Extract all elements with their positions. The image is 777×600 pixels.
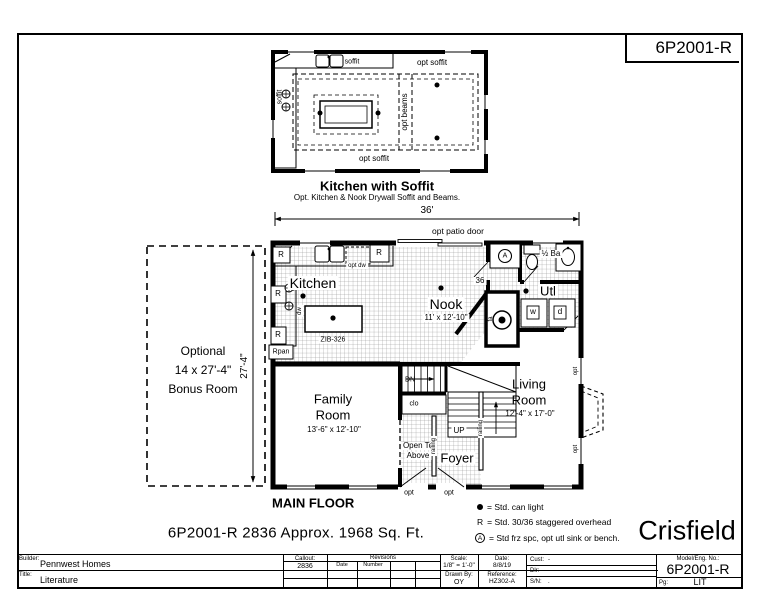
title-label: Title: [19, 572, 32, 578]
opt-window-label-2: opt [573, 445, 579, 453]
island-model-label: ZIB-326 [319, 337, 348, 344]
family-room-dimension: 13'-6" x 12'-10" [307, 426, 361, 434]
inset-subtitle: Opt. Kitchen & Nook Drywall Soffit and B… [294, 194, 460, 202]
utility-label: Utl [538, 285, 558, 298]
closet-label: clo [410, 401, 419, 408]
dlr-label: Dlr: [530, 568, 539, 574]
furnace-label: fa [488, 316, 494, 321]
opt-dw-label: opt dw [346, 263, 368, 269]
opt-window-label-1: opt [573, 367, 579, 375]
drawing-sheet: 6P2001-R [0, 0, 777, 600]
inset-soffit-top-label: soffit [345, 59, 360, 66]
dw-label: dw [297, 305, 303, 317]
builder-value: Pennwest Homes [40, 560, 111, 569]
opt-door-label-1: opt [404, 490, 414, 497]
opt-door-label-2: opt [444, 490, 454, 497]
railing-label-right: railing [478, 418, 484, 438]
plan-height-dimension: 27'-4" [240, 351, 250, 380]
dlr-value: - [548, 568, 550, 574]
open-to-above-label-2: Above [405, 452, 432, 460]
legend-can-light-text: = Std. can light [487, 502, 543, 512]
inset-opt-soffit-bottom-label: opt soffit [359, 155, 389, 163]
half-bath-label: ½ Ba [540, 250, 563, 258]
r-marker-2: R [275, 290, 281, 298]
r-marker-4: R [376, 249, 382, 257]
nook-label: Nook [428, 297, 465, 311]
dryer-label: d [558, 308, 562, 316]
living-room-label-2: Room [512, 394, 547, 407]
pg-value: LIT [693, 578, 706, 587]
bonus-room-label-3: Bonus Room [168, 383, 237, 395]
reference-value: HZ302-A [489, 579, 515, 586]
date-value: 8/8/19 [493, 563, 511, 570]
legend-overhead: R = Std. 30/36 staggered overhead [477, 517, 611, 527]
sn-label: S/N: [530, 579, 542, 585]
cust-label: Cust: [530, 557, 544, 563]
legend-frz-space-text: = Std frz spc, opt utl sink or bench. [489, 533, 620, 543]
inset-soffit-left-label: soffit [277, 90, 284, 105]
model-value: 6P2001-R [666, 562, 729, 576]
family-room-label-2: Room [316, 409, 351, 422]
sn-value: . [548, 579, 550, 585]
drawn-by-value: OY [454, 579, 464, 586]
plan-caption: 6P2001-R 2836 Approx. 1968 Sq. Ft. [168, 525, 424, 542]
circle-a-icon: A [475, 533, 485, 543]
living-room-label-1: Living [512, 378, 546, 391]
pg-label: Pg: [659, 580, 668, 586]
callout-value: 2836 [297, 563, 313, 570]
main-floor-label: MAIN FLOOR [272, 497, 354, 510]
kitchen-label: Kitchen [288, 276, 339, 290]
legend-overhead-text: = Std. 30/36 staggered overhead [487, 517, 611, 527]
family-room-label-1: Family [314, 393, 352, 406]
model-name: Crisfield [638, 516, 736, 547]
callout-label: Callout: [295, 556, 315, 562]
inset-title: Kitchen with Soffit [320, 180, 434, 193]
title-value: Literature [40, 576, 78, 585]
inset-opt-soffit-top-label: opt soffit [417, 59, 447, 67]
circle-a-letter: A [478, 535, 482, 542]
foyer-label: Foyer [438, 452, 475, 465]
r-marker-1: R [278, 251, 284, 259]
r-marker-3: R [275, 331, 281, 339]
nook-dimension: 11' x 12'-10" [422, 314, 469, 322]
legend-frz-space: A = Std frz spc, opt utl sink or bench. [475, 533, 620, 543]
living-room-dimension: 12'-4" x 17'-0" [505, 410, 554, 418]
plan-linework [0, 0, 777, 600]
revisions-label: Revisions [370, 555, 396, 561]
cust-value: - [548, 557, 550, 563]
wall-36-label: 36 [474, 277, 487, 285]
builder-label: Builder: [19, 556, 39, 562]
bonus-room-label-1: Optional [181, 345, 226, 357]
dn-label: DN [405, 377, 415, 384]
railing-label-left: railing [431, 436, 437, 456]
legend-can-light: = Std. can light [477, 502, 543, 512]
scale-value: 1/8" = 1'-0" [443, 563, 475, 570]
rev-date-label: Date [336, 563, 348, 569]
inset-opt-beams-label: opt beams [401, 91, 409, 132]
frz-space-symbol: A [503, 253, 508, 260]
open-to-above-label-1: Open To [401, 442, 435, 450]
rev-number-label: Number [363, 563, 383, 569]
rpan-label: Rpan [273, 349, 290, 356]
can-light-icon [477, 504, 483, 510]
opt-patio-door-label: opt patio door [432, 227, 484, 236]
bonus-room-label-2: 14 x 27'-4" [175, 364, 232, 376]
washer-label: w [530, 308, 536, 316]
plan-width-dimension: 36' [418, 206, 435, 216]
drawn-by-label: Drawn By: [445, 572, 473, 578]
up-label: UP [451, 427, 466, 435]
r-symbol: R [477, 517, 483, 527]
